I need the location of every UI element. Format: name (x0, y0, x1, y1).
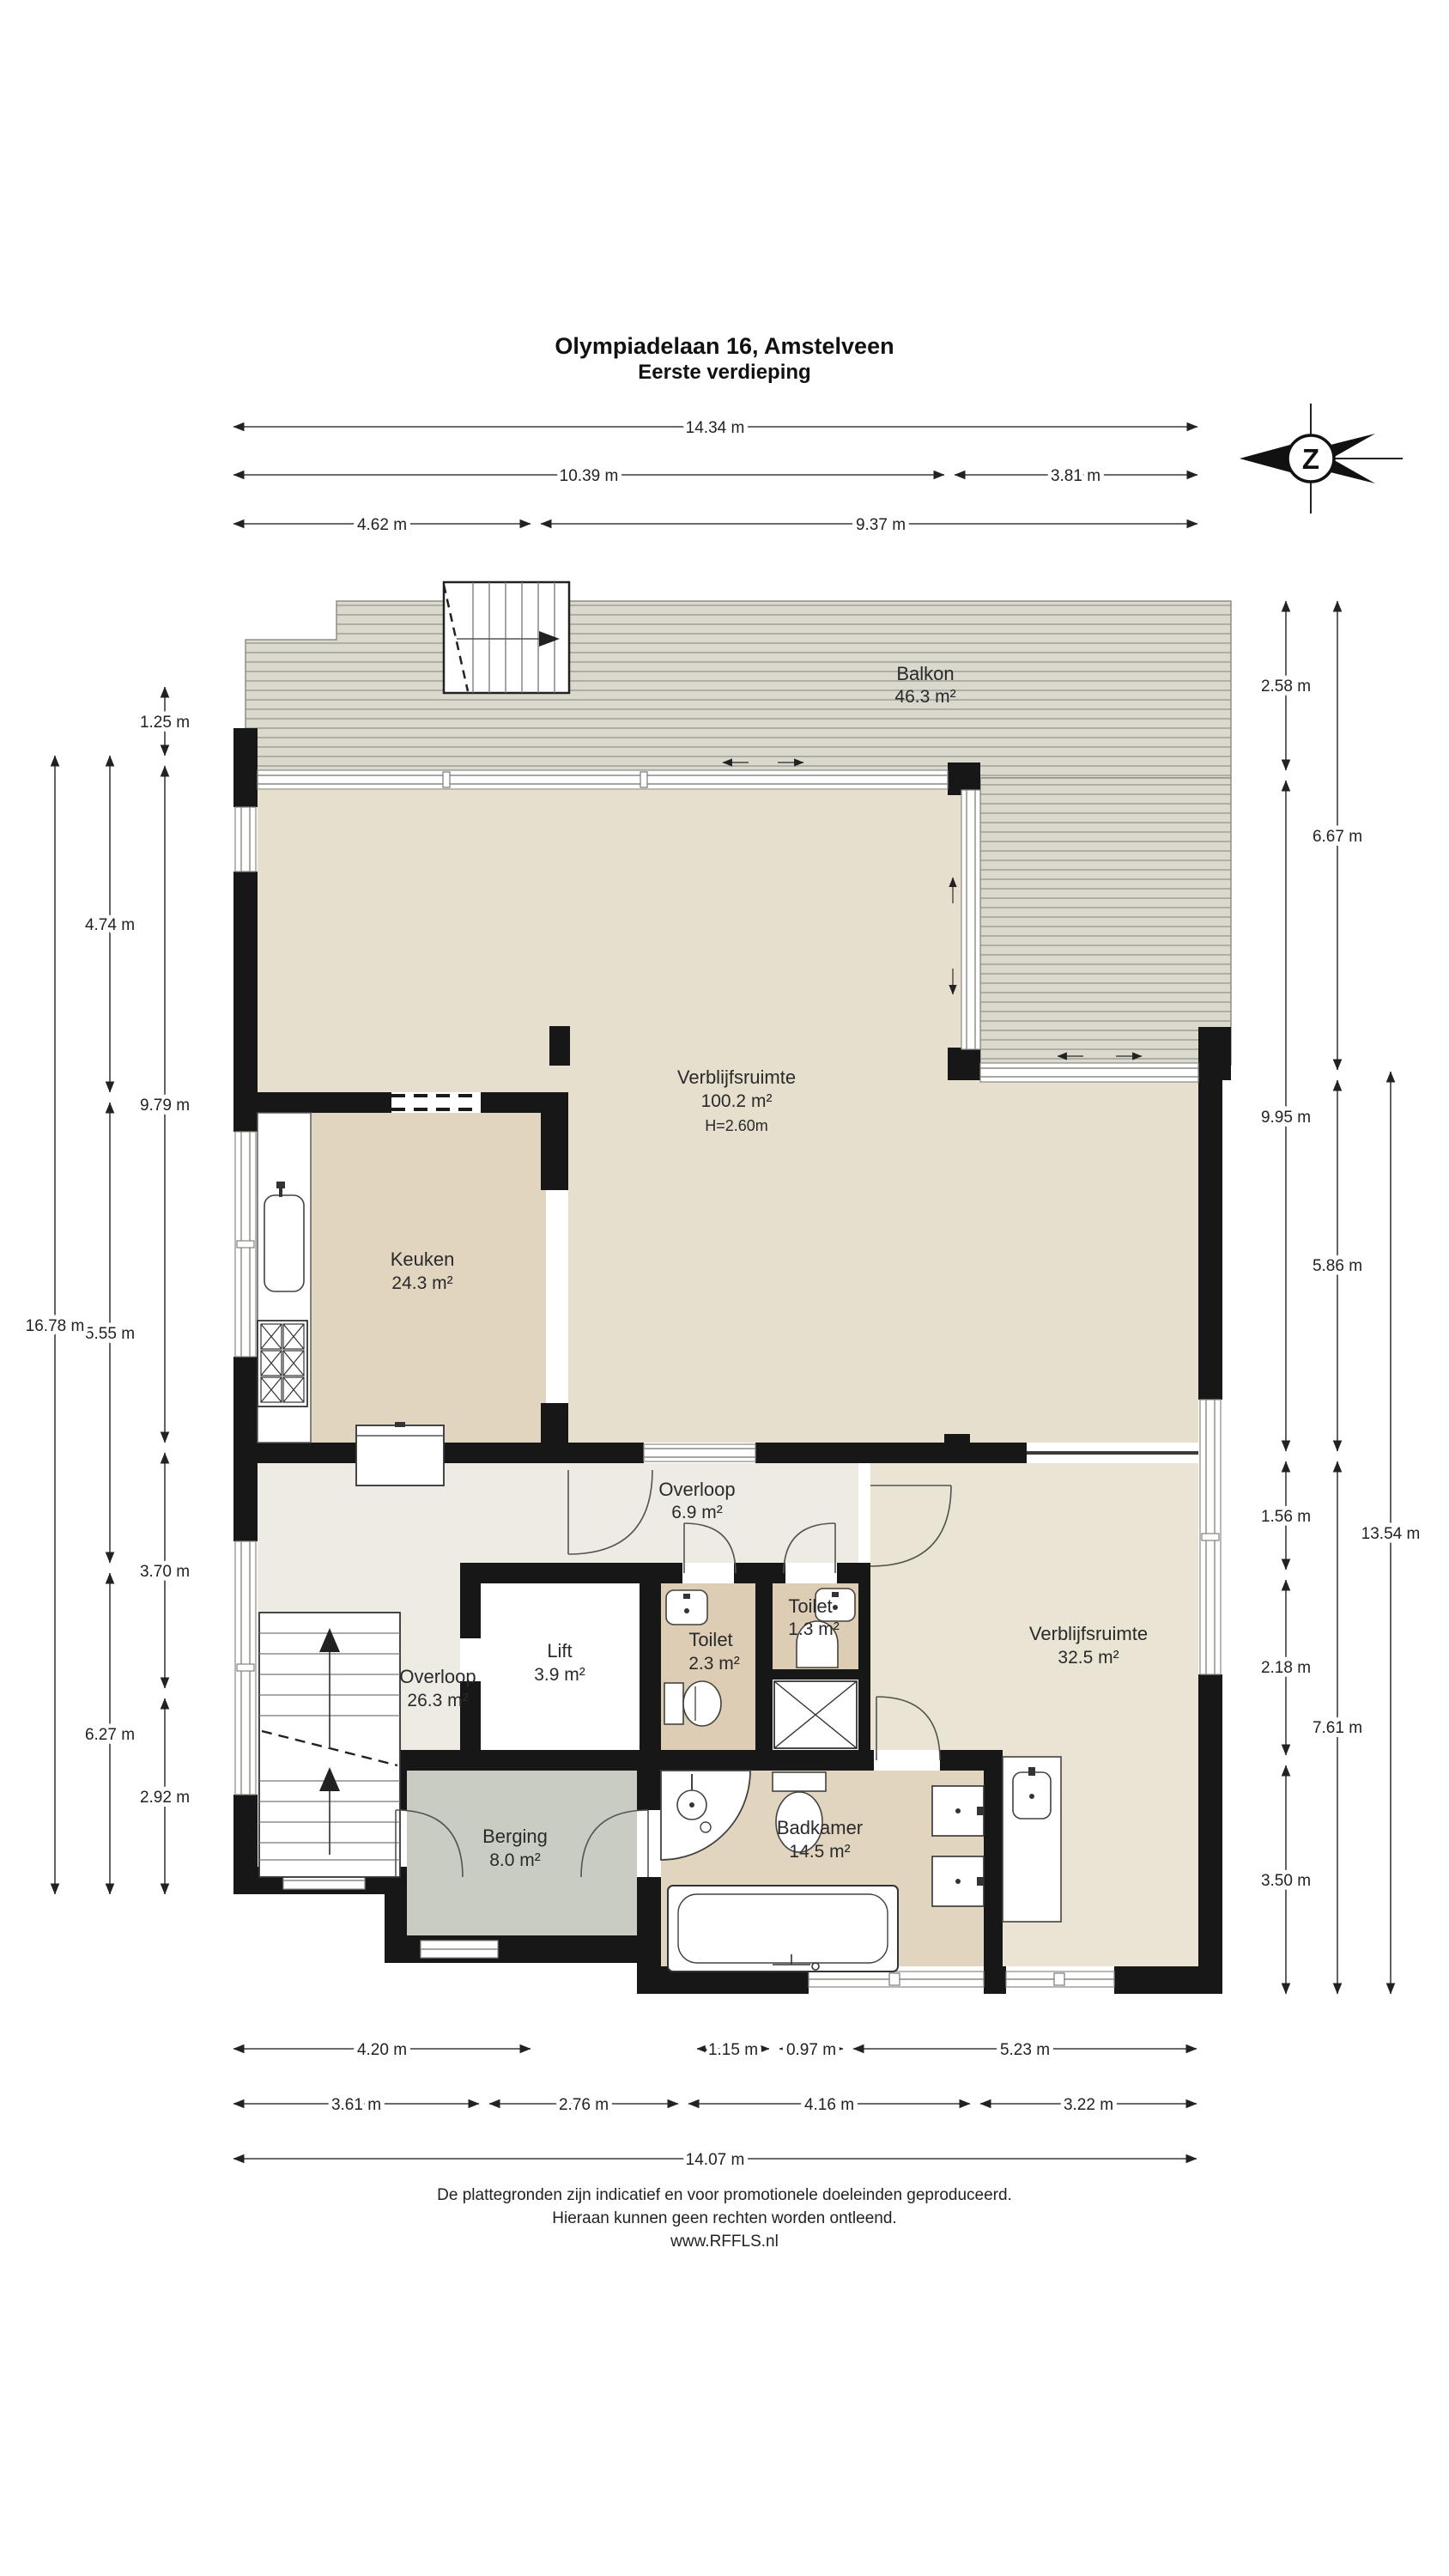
room-label-keuken: Keuken (391, 1249, 455, 1270)
floorplan-canvas: Olympiadelaan 16, Amstelveen Eerste verd… (0, 0, 1449, 2576)
dim-label: 7.61 m (1313, 1719, 1362, 1737)
dim-label: 2.18 m (1261, 1659, 1311, 1677)
hall-top-window (644, 1444, 755, 1461)
kitchen-appliance-icon (356, 1422, 444, 1485)
title-address: Olympiadelaan 16, Amstelveen (555, 333, 894, 359)
room-area-verblijf2: 32.5 m² (1058, 1648, 1119, 1668)
dim-label: 3.81 m (1051, 467, 1100, 485)
room-label-balkon: Balkon (896, 663, 954, 684)
toilet1-basin-icon (666, 1590, 707, 1625)
dim-label: 2.58 m (1261, 677, 1311, 696)
dim-label: 3.22 m (1064, 2096, 1113, 2114)
footer-line-1: De plattegronden zijn indicatief en voor… (437, 2186, 1012, 2204)
floorplan-page: Olympiadelaan 16, Amstelveen Eerste verd… (0, 0, 1449, 2576)
footer-website: www.RFFLS.nl (670, 2233, 779, 2251)
room-label-badkamer: Badkamer (777, 1817, 863, 1838)
room-label-verblijf2: Verblijfsruimte (1029, 1623, 1148, 1644)
dim-label: 4.74 m (85, 916, 135, 934)
kitchen-dashed-opening (391, 1092, 481, 1113)
dim-label: 4.62 m (357, 516, 407, 534)
room-area-verblijf1: 100.2 m² (701, 1091, 773, 1111)
dim-label: 3.61 m (331, 2096, 381, 2114)
exterior-stairs-icon (444, 582, 569, 693)
dim-label: 9.95 m (1261, 1109, 1311, 1127)
dim-label: 1.56 m (1261, 1508, 1311, 1526)
dimensions-top: 14.34 m 10.39 m 3.81 m 4.62 m 9.37 m (233, 419, 1197, 534)
dimensions-right: 2.58 m 9.95 m 1.56 m 2.18 m 3.50 m 6.67 … (1261, 601, 1420, 1994)
dim-label: 5.55 m (85, 1325, 135, 1343)
room-label-verblijf1: Verblijfsruimte (677, 1066, 796, 1088)
dimensions-left: 1.25 m 9.79 m 3.70 m 2.92 m 4.74 m 5.55 … (26, 687, 190, 1894)
dim-label: 9.79 m (140, 1097, 190, 1115)
dim-label: 14.34 m (686, 419, 745, 437)
dim-label: 5.86 m (1313, 1257, 1362, 1275)
dim-label: 10.39 m (560, 467, 619, 485)
room-area-badkamer: 14.5 m² (789, 1842, 850, 1862)
dim-label: 14.07 m (686, 2151, 745, 2169)
room-area-keuken: 24.3 m² (391, 1273, 452, 1293)
left-window-3 (235, 1541, 256, 1795)
duct-icon (774, 1681, 857, 1748)
left-window-1 (235, 807, 256, 872)
dim-label: 1.15 m (708, 2041, 758, 2059)
right-window (1200, 1400, 1221, 1674)
room-area-berging: 8.0 m² (489, 1850, 541, 1870)
room-label-berging: Berging (482, 1826, 548, 1847)
room-label-lift: Lift (547, 1640, 572, 1662)
room-area-overloop1: 6.9 m² (671, 1503, 723, 1522)
dim-label: 2.76 m (559, 2096, 609, 2114)
dim-label: 16.78 m (26, 1317, 85, 1335)
room-label-toilet2: Toilet (788, 1595, 832, 1617)
stove-icon (258, 1321, 307, 1406)
room-area-toilet1: 2.3 m² (688, 1654, 740, 1674)
dim-label: 6.67 m (1313, 828, 1362, 846)
room-area-overloop2: 26.3 m² (407, 1691, 468, 1710)
dim-label: 0.97 m (786, 2041, 836, 2059)
dim-label: 4.16 m (804, 2096, 854, 2114)
plan-title: Olympiadelaan 16, Amstelveen Eerste verd… (555, 333, 894, 384)
berging-bottom-window (421, 1941, 498, 1958)
badkamer-wc-icon (773, 1772, 826, 1852)
dim-label: 6.27 m (85, 1726, 135, 1744)
room-label-overloop1: Overloop (658, 1479, 735, 1500)
left-window-2 (235, 1132, 256, 1357)
footer-disclaimer: De plattegronden zijn indicatief en voor… (437, 2186, 1012, 2251)
compass-icon: Z (1240, 404, 1403, 513)
dim-label: 1.25 m (140, 714, 190, 732)
footer-line-2: Hieraan kunnen geen rechten worden ontle… (552, 2209, 896, 2227)
room-area-balkon: 46.3 m² (894, 687, 955, 707)
room-height-verblijf1: H=2.60m (705, 1117, 768, 1134)
room-area-toilet2: 1.3 m² (788, 1619, 840, 1639)
room-label-toilet1: Toilet (688, 1629, 732, 1650)
bathtub-icon (668, 1886, 898, 1971)
room-label-overloop2: Overloop (399, 1666, 476, 1687)
terrace-railing (809, 1971, 1114, 1987)
dim-label: 4.20 m (357, 2041, 407, 2059)
dim-label: 13.54 m (1361, 1525, 1421, 1543)
compass-letter: Z (1302, 443, 1319, 475)
dim-label: 9.37 m (856, 516, 906, 534)
toilet1-wc-icon (664, 1681, 721, 1726)
dim-label: 5.23 m (1000, 2041, 1050, 2059)
dim-label: 2.92 m (140, 1789, 190, 1807)
cabinet-sink-icon (1003, 1757, 1061, 1922)
dim-label: 3.50 m (1261, 1872, 1311, 1890)
title-floor: Eerste verdieping (638, 361, 810, 384)
interior-stairs-icon (259, 1613, 400, 1877)
dimensions-bottom: 4.20 m 1.15 m 0.97 m 5.23 m 3.61 m 2.76 … (233, 2041, 1197, 2169)
dim-label: 3.70 m (140, 1563, 190, 1581)
room-area-lift: 3.9 m² (534, 1665, 585, 1685)
